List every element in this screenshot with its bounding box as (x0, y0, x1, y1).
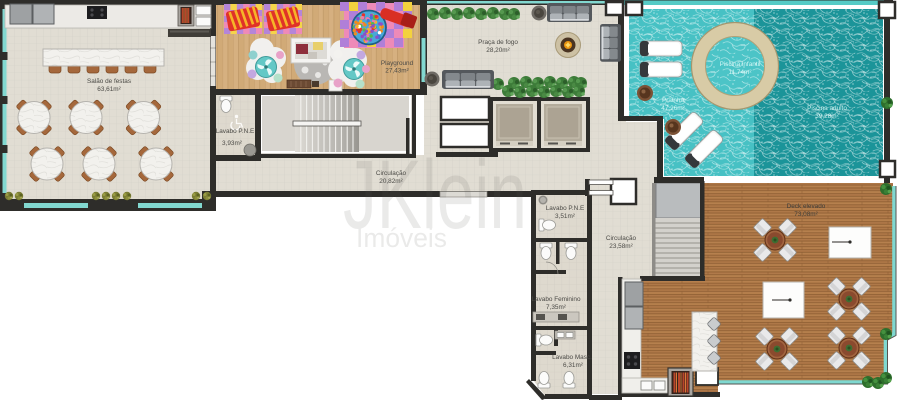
svg-text:28,20m²: 28,20m² (486, 47, 509, 54)
svg-text:7,35m²: 7,35m² (546, 304, 566, 311)
svg-text:Deck elevado: Deck elevado (787, 203, 826, 210)
svg-text:3,51m²: 3,51m² (555, 213, 575, 220)
svg-text:Lavabo Masc.: Lavabo Masc. (552, 354, 592, 361)
svg-text:Salão de festas: Salão de festas (87, 78, 131, 85)
svg-text:73,08m²: 73,08m² (794, 211, 817, 218)
svg-text:Praça de fogo: Praça de fogo (478, 39, 518, 46)
svg-text:6,31m²: 6,31m² (563, 362, 583, 369)
svg-text:23,58m²: 23,58m² (609, 243, 632, 250)
svg-text:11,74m²: 11,74m² (729, 69, 752, 76)
svg-text:Piscina infantil: Piscina infantil (720, 61, 761, 68)
svg-text:Piscina adulto: Piscina adulto (807, 105, 847, 112)
svg-text:3,93m²: 3,93m² (222, 140, 242, 147)
svg-text:Playground: Playground (381, 60, 414, 67)
svg-text:47,26m²: 47,26m² (661, 105, 684, 112)
svg-text:Lavabo Feminino: Lavabo Feminino (531, 296, 580, 303)
svg-text:Lavabo P.N.E: Lavabo P.N.E (546, 205, 585, 212)
svg-text:Lavabo P.N.E: Lavabo P.N.E (216, 128, 255, 135)
svg-text:63,61m²: 63,61m² (97, 86, 120, 93)
svg-text:Prainha: Prainha (662, 97, 684, 104)
svg-text:39,28m²: 39,28m² (815, 113, 838, 120)
svg-text:Circulação: Circulação (606, 235, 637, 242)
svg-text:27,43m²: 27,43m² (385, 68, 408, 75)
svg-text:Imóveis: Imóveis (356, 223, 447, 253)
